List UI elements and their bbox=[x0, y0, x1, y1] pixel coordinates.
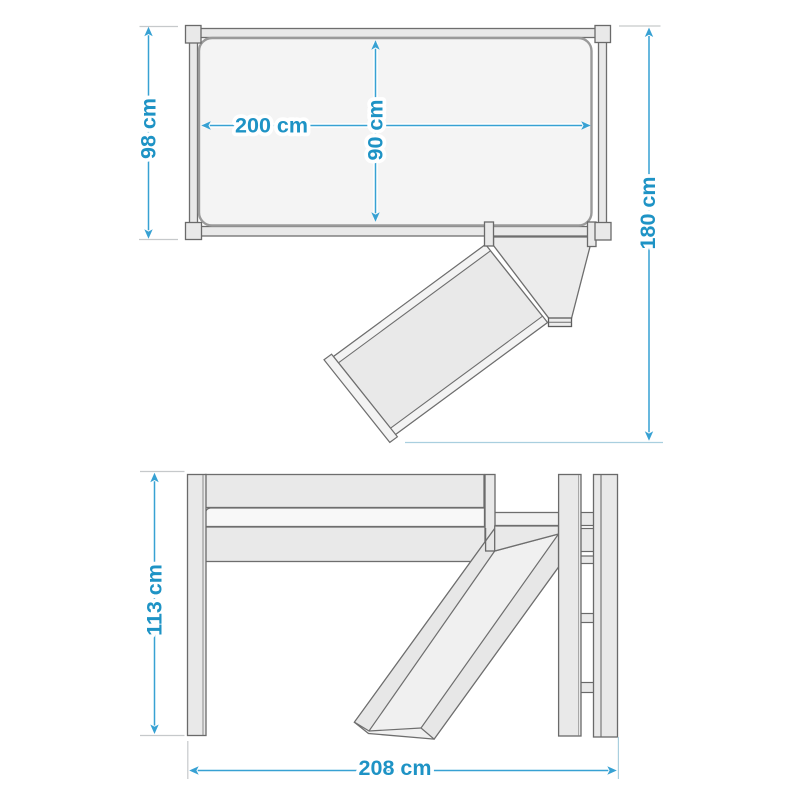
svg-text:90 cm: 90 cm bbox=[364, 100, 388, 161]
svg-text:208 cm: 208 cm bbox=[359, 756, 432, 780]
svg-text:98 cm: 98 cm bbox=[137, 98, 161, 159]
svg-text:200 cm: 200 cm bbox=[235, 114, 308, 138]
svg-text:180 cm: 180 cm bbox=[636, 177, 660, 250]
svg-text:113 cm: 113 cm bbox=[143, 564, 167, 636]
